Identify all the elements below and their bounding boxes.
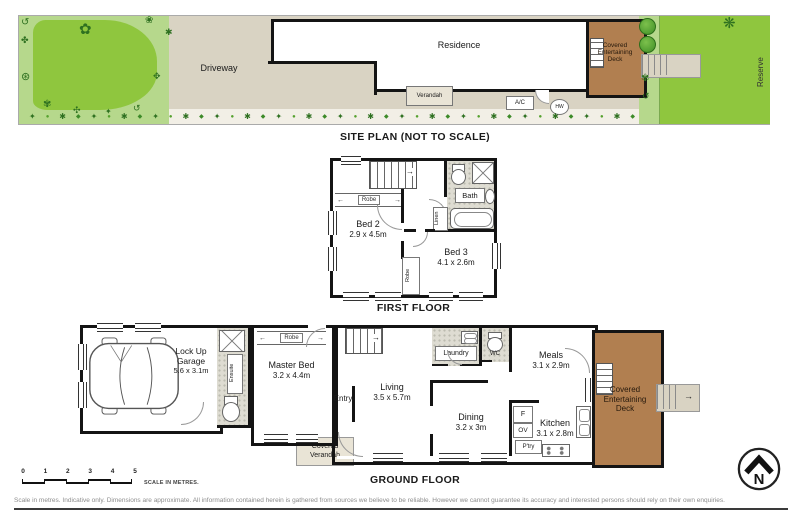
plant-icon: ●: [354, 114, 358, 120]
residence-notch: [268, 61, 377, 95]
wall: [430, 434, 433, 456]
cooktop-icon: [542, 444, 570, 457]
front-door-arc: [338, 432, 363, 457]
plant-icon: ◆: [630, 114, 635, 120]
steps-arrow: →: [684, 392, 693, 401]
plant-icon: ◆: [569, 114, 574, 120]
plant-icon: ✱: [490, 113, 497, 121]
north-label: N: [754, 471, 765, 488]
wall: [509, 328, 512, 372]
ensuite-strip: Ensuite: [217, 325, 251, 428]
plant-icon: ◆: [261, 114, 266, 120]
garage-dims: 5.6 x 3.1m: [169, 366, 213, 375]
ground-floor-title: GROUND FLOOR: [300, 474, 530, 486]
wall: [482, 360, 492, 362]
window: [328, 211, 337, 235]
plant-icon: ●: [230, 114, 234, 120]
floorplan-page: Reserve Residence Driveway Verandah Cove…: [0, 0, 800, 521]
master-bed-dims: 3.2 x 4.4m: [261, 371, 322, 381]
plant-icon: ●: [107, 114, 111, 120]
footer-divider: [14, 508, 788, 510]
plant-icon: ◆: [322, 114, 327, 120]
steps-lines: [657, 385, 681, 409]
bed3-label: Bed 3 4.1 x 2.6m: [423, 247, 489, 267]
plant-icon: ●: [600, 114, 604, 120]
plant-icon: ✦: [522, 113, 529, 121]
shower-icon: [219, 330, 245, 352]
toilet-icon: [487, 332, 501, 350]
wall: [444, 161, 447, 197]
wall: [432, 364, 448, 366]
robe-closet: Robe: [402, 257, 420, 295]
verandah-box: Verandah: [406, 86, 453, 106]
plant-icon: ✱: [182, 113, 189, 121]
lawn: [33, 20, 157, 110]
bathtub-icon: [450, 208, 494, 229]
plant-icon: ✦: [399, 113, 406, 121]
first-floor-title: FIRST FLOOR: [330, 302, 497, 314]
wall: [460, 364, 482, 366]
window: [343, 292, 369, 301]
bed2-label: Bed 2 2.9 x 4.5m: [337, 219, 399, 239]
window: [375, 292, 401, 301]
ensuite-label-box: Ensuite: [227, 354, 243, 394]
bath-label-box: Bath: [455, 188, 485, 203]
basin-icon: [485, 189, 495, 204]
plant-icon: ●: [46, 114, 50, 120]
ground-deck-label: Covered Entertaining Deck: [600, 385, 650, 414]
plant-icon: ◆: [384, 114, 389, 120]
living-label: Living 3.5 x 5.7m: [363, 382, 421, 402]
steps-lines: [642, 55, 668, 75]
shower-icon: [472, 162, 494, 184]
fridge-label: F: [521, 411, 525, 418]
site-plan-title: SITE PLAN (NOT TO SCALE): [300, 131, 530, 143]
site-deck: Covered Entertaining Deck: [586, 19, 647, 98]
driveway-label: Driveway: [189, 63, 249, 74]
reserve-label: Reserve: [756, 44, 768, 100]
plant-icon: ✦: [460, 113, 467, 121]
north-compass: N: [736, 446, 782, 492]
ground-deck: Covered Entertaining Deck: [592, 330, 664, 468]
window: [429, 292, 453, 301]
linen-closet: Linen: [433, 207, 448, 231]
main-block: → Laundry WC Meals 3.1 x 2.9m: [332, 325, 598, 465]
first-floor-plan: Bath Linen → ← Robe → Robe Bed 2: [330, 158, 497, 298]
wall: [509, 400, 512, 456]
bath-label: Bath: [462, 191, 477, 200]
plant-icon: ✱: [244, 113, 251, 121]
arrow-left-icon: ←: [259, 335, 266, 342]
master-bed-name: Master Bed: [261, 360, 322, 371]
arrow-left-icon: ←: [337, 197, 344, 204]
plant-icon: ●: [538, 114, 542, 120]
robe-label: Robe: [358, 195, 380, 205]
stairs-icon: →: [369, 161, 417, 189]
scale-caption: SCALE IN METRES.: [144, 480, 199, 486]
dining-name: Dining: [443, 412, 499, 423]
scale-number: 5: [130, 468, 140, 475]
plant-icon: ✱: [614, 113, 621, 121]
scale-numbers: 012345: [22, 468, 152, 477]
wall: [430, 380, 433, 406]
window: [459, 292, 483, 301]
kitchen-label: Kitchen 3.1 x 2.8m: [529, 418, 581, 438]
scale-segment: [66, 479, 88, 484]
scale-segments: [22, 479, 132, 485]
kitchen-dims: 3.1 x 2.8m: [529, 429, 581, 439]
master-bed-label: Master Bed 3.2 x 4.4m: [261, 360, 322, 380]
bed3-name: Bed 3: [423, 247, 489, 258]
plant-icon: ◆: [446, 114, 451, 120]
plant-row: ✦●✱◆✦●✱◆✦●✱◆✦●✱◆✦●✱◆✦●✱◆✦●✱◆✦●✱◆✦●✱◆✦●✱◆: [29, 111, 635, 122]
site-deck-steps: [641, 54, 701, 78]
window: [439, 453, 469, 462]
arrow-right-icon: →: [394, 197, 401, 204]
scale-number: 1: [40, 468, 50, 475]
plant-icon: ✱: [552, 113, 559, 121]
plant-icon: ●: [292, 114, 296, 120]
scale-segment: [88, 479, 110, 484]
window: [341, 156, 361, 165]
ac-label: A/C: [515, 100, 525, 107]
kitchen-name: Kitchen: [529, 418, 581, 429]
ac-unit: A/C: [506, 96, 534, 110]
garage-door-arc: [181, 402, 204, 425]
wc-label: WC: [483, 351, 507, 358]
plant-icon: ◆: [76, 114, 81, 120]
living-name: Living: [363, 382, 421, 393]
plant-icon: ✦: [152, 113, 159, 121]
window: [481, 453, 507, 462]
window: [264, 434, 288, 443]
oven-label: OV: [518, 427, 527, 434]
plant-icon: ◆: [507, 114, 512, 120]
scale-number: 2: [63, 468, 73, 475]
plant-icon: ◆: [199, 114, 204, 120]
plant-icon: ✦: [214, 113, 221, 121]
plant-icon: ◆: [138, 114, 143, 120]
scale-number: 0: [18, 468, 28, 475]
residence-label: Residence: [409, 40, 509, 51]
ground-floor-plan: Lock Up Garage 5.6 x 3.1m Ensuite ←: [80, 325, 592, 465]
dining-label: Dining 3.2 x 3m: [443, 412, 499, 432]
toilet-icon: [451, 164, 464, 183]
garage-block: Lock Up Garage 5.6 x 3.1m: [80, 325, 223, 434]
plant-icon: ●: [415, 114, 419, 120]
bed3-dims: 4.1 x 2.6m: [423, 258, 489, 268]
stairs-arrow: →: [372, 334, 380, 342]
deck-door-arc: [565, 348, 590, 373]
stairs-icon: →: [345, 328, 383, 354]
north-compass-icon: N: [736, 446, 782, 492]
site-deck-label: Covered Entertaining Deck: [595, 42, 635, 63]
robe-label: Robe: [280, 333, 302, 343]
linen-label: Linen: [434, 208, 445, 228]
window: [97, 323, 123, 332]
plant-icon: ●: [169, 114, 173, 120]
toilet-icon: [222, 396, 238, 420]
plant-icon: ✦: [275, 113, 282, 121]
garage-door-gap: [179, 425, 203, 428]
deck-steps-out: →: [656, 384, 700, 412]
entry-label: Entry: [324, 394, 362, 404]
scale-segment: [22, 479, 44, 484]
scale-segment: [110, 479, 132, 484]
plant-icon: ✦: [91, 113, 98, 121]
pantry-label: P'try: [523, 444, 535, 450]
laundry-sink-icon: [461, 331, 478, 344]
car-icon: [87, 336, 181, 416]
plant-icon: ✱: [367, 113, 374, 121]
plant-icon: ✱: [429, 113, 436, 121]
plant-icon: ✦: [337, 113, 344, 121]
master-bed-block: ← Robe → Master Bed 3.2 x 4.4m: [251, 325, 338, 446]
verandah-label: Verandah: [417, 93, 443, 100]
window: [492, 243, 501, 269]
garage-label: Lock Up Garage 5.6 x 3.1m: [169, 346, 213, 375]
plant-icon: ✱: [59, 113, 66, 121]
wall: [352, 386, 355, 422]
disclaimer-text: Scale in metres. Indicative only. Dimens…: [14, 497, 790, 504]
garage-name: Lock Up Garage: [169, 346, 213, 366]
scale-number: 4: [108, 468, 118, 475]
window: [373, 453, 403, 462]
plant-icon: ✱: [306, 113, 313, 121]
plant-icon: ✱: [121, 113, 128, 121]
scale-bar: 012345 SCALE IN METRES.: [22, 468, 222, 490]
ensuite-label: Ensuite: [229, 357, 239, 389]
living-dims: 3.5 x 5.7m: [363, 393, 421, 403]
plant-icon: ✦: [583, 113, 590, 121]
stairs-arrow: →: [406, 168, 414, 176]
wall: [430, 380, 488, 383]
robe-label-vertical: Robe: [405, 260, 415, 290]
plant-icon: ●: [477, 114, 481, 120]
window: [328, 247, 337, 271]
scale-number: 3: [85, 468, 95, 475]
bed2-name: Bed 2: [337, 219, 399, 230]
dining-dims: 3.2 x 3m: [443, 423, 499, 433]
window: [78, 382, 87, 408]
scale-segment: [44, 479, 66, 484]
bed2-dims: 2.9 x 4.5m: [337, 230, 399, 240]
window: [135, 323, 161, 332]
pantry-box: P'try: [515, 440, 542, 454]
site-plan: Reserve Residence Driveway Verandah Cove…: [18, 15, 770, 125]
wall: [509, 400, 539, 403]
hw-label: HW: [555, 104, 563, 110]
window: [296, 434, 318, 443]
bed3-door-arc: [413, 232, 428, 247]
plant-icon: ✦: [29, 113, 36, 121]
window: [78, 344, 87, 370]
